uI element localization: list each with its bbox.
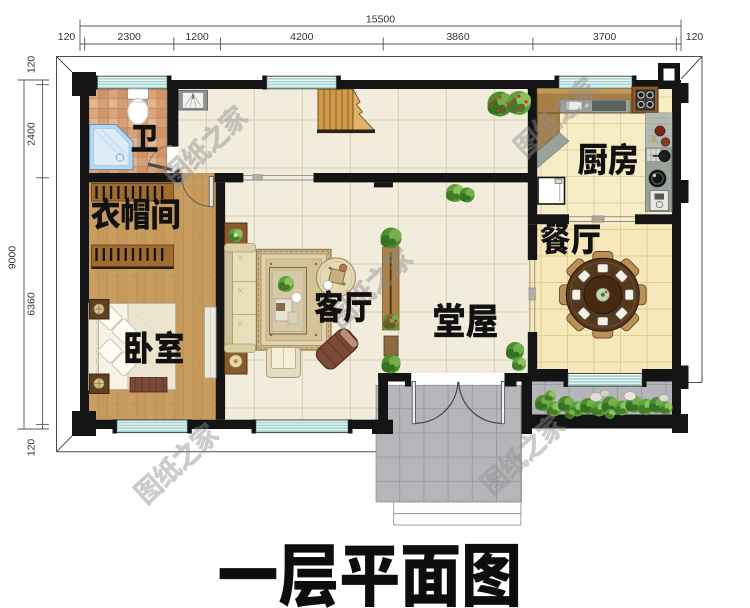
svg-text:120: 120: [58, 31, 76, 43]
svg-text:120: 120: [686, 31, 704, 43]
svg-text:2300: 2300: [118, 31, 142, 43]
svg-text:3700: 3700: [593, 31, 617, 43]
svg-text:120: 120: [26, 439, 38, 457]
svg-text:4200: 4200: [290, 31, 314, 43]
svg-text:9000: 9000: [7, 246, 19, 270]
svg-text:6360: 6360: [26, 292, 38, 316]
svg-text:1200: 1200: [185, 31, 209, 43]
svg-text:120: 120: [26, 56, 38, 74]
svg-text:15500: 15500: [366, 14, 395, 26]
svg-text:3860: 3860: [446, 31, 470, 43]
svg-text:2400: 2400: [26, 122, 38, 146]
